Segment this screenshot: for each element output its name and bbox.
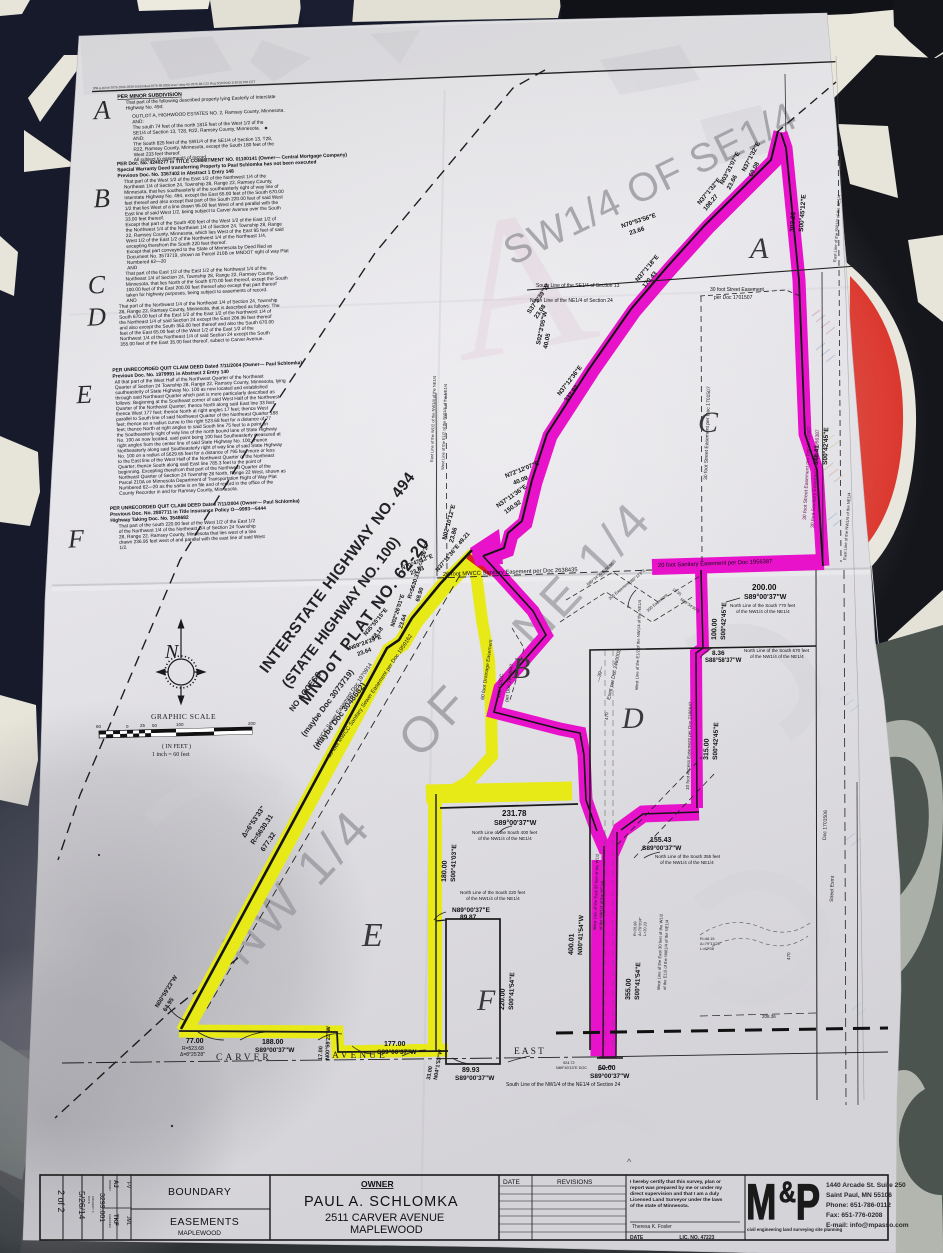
svg-text:North Line of the South 400 fe: North Line of the South 400 feet [472,830,538,835]
svg-text:60.00: 60.00 [598,1065,616,1072]
svg-text:E-mail: info@mpasso.com: E-mail: info@mpasso.com [826,1222,909,1229]
svg-text:231.78: 231.78 [502,809,527,818]
svg-text:Δ=79°13'24": Δ=79°13'24" [700,942,722,946]
svg-text:South Line of the SE1/4 of Sec: South Line of the SE1/4 of Section 13 [536,283,620,289]
svg-text:S88°58'37"W: S88°58'37"W [705,658,742,664]
svg-text:A: A [91,95,111,126]
svg-text:MAPLEWOOD: MAPLEWOOD [350,1224,423,1236]
svg-text:South Line of the NW1/4 of the: South Line of the NW1/4 of the NE1/4 of … [506,1082,620,1088]
svg-text:Δ=79°8'24": Δ=79°8'24" [638,916,643,936]
svg-text:( IN FEET ): ( IN FEET ) [162,743,191,750]
svg-text:E: E [361,917,383,954]
svg-text:2511 CARVER AVENUE: 2511 CARVER AVENUE [325,1212,444,1224]
svg-text:North Line of the South 670 fe: North Line of the South 670 feet [744,648,810,653]
svg-text:1 inch = 60 feet: 1 inch = 60 feet [152,751,190,758]
svg-text:1/2.: 1/2. [119,545,127,551]
svg-text:DATE: DATE [503,1179,521,1186]
svg-text:303.26: 303.26 [789,211,797,232]
svg-text:Licensed Land Surveyor under t: Licensed Land Surveyor under the laws [630,1197,723,1203]
svg-text:200.00: 200.00 [752,583,777,592]
svg-text:89.93: 89.93 [462,1067,480,1074]
svg-text:S00°42'45"E: S00°42'45"E [719,602,728,641]
svg-text:F: F [66,524,85,554]
svg-text:North Line of the South 770 fe: North Line of the South 770 feet [730,603,796,608]
svg-text:Theresa K. Fosler: Theresa K. Fosler [632,1224,672,1230]
svg-text:50: 50 [152,723,158,728]
svg-text:per Doc 1701507: per Doc 1701507 [714,295,753,301]
svg-text:EASEMENTS: EASEMENTS [170,1216,239,1228]
svg-text:North Line of the NE1/4 of Sec: North Line of the NE1/4 of Section 24 [530,298,613,304]
svg-text:30 foot Street Easement: 30 foot Street Easement [710,287,765,293]
svg-text:8.36: 8.36 [712,650,725,657]
svg-text:CHECKED: CHECKED [108,1214,112,1228]
svg-text:S00°41'54"E: S00°41'54"E [633,962,642,1001]
svg-text:DATE ____________ LIC. NO. 47: DATE ____________ LIC. NO. 47223 [630,1235,715,1241]
svg-text:of the NW1/4 of the NE1/4: of the NW1/4 of the NE1/4 [750,654,804,659]
svg-text:M: M [746,1174,776,1230]
svg-text:470: 470 [604,712,609,720]
svg-text:D: D [86,302,107,332]
svg-text:DATE: DATE [87,1196,91,1204]
svg-text:F: F [476,984,496,1017]
svg-text:1440 Arcade St. Suite 250: 1440 Arcade St. Suite 250 [826,1182,906,1189]
svg-text:100: 100 [176,722,184,727]
svg-text:5/26/14: 5/26/14 [77,1191,87,1220]
svg-text:R=46.15: R=46.15 [700,937,714,941]
svg-text:N: N [164,641,180,663]
svg-text:REVISIONS: REVISIONS [557,1179,593,1186]
svg-text:of the NW1/4 of the NE1/4: of the NW1/4 of the NE1/4 [660,860,714,865]
svg-text:208.36: 208.36 [762,1014,776,1019]
svg-text:Saint Paul, MN 55106: Saint Paul, MN 55106 [826,1192,892,1199]
svg-text:Street Esmt: Street Esmt [829,875,836,902]
svg-text:77.00: 77.00 [186,1038,204,1045]
svg-text:Δ=8°25'28": Δ=8°25'28" [180,1052,205,1058]
svg-text:S00°41'03"E: S00°41'03"E [449,844,458,883]
svg-text:S89°00'37"W: S89°00'37"W [744,593,787,601]
svg-text:BOUNDARY: BOUNDARY [168,1186,231,1198]
svg-text:3299.001: 3299.001 [98,1193,105,1222]
svg-text:315.00: 315.00 [703,738,711,760]
svg-text:C: C [87,270,106,300]
svg-text:B: B [512,652,530,685]
svg-text:355.00: 355.00 [625,978,633,1000]
svg-text:North Line of the South 220 fe: North Line of the South 220 feet [460,890,526,895]
svg-text:&: & [779,1175,796,1208]
svg-text:89.87: 89.87 [460,914,477,921]
svg-text:155.43: 155.43 [650,837,672,844]
svg-text:180.00: 180.00 [441,860,449,882]
svg-text:I hereby certify that this sur: I hereby certify that this survey, plan … [630,1179,721,1185]
svg-text:N00°41'54"W: N00°41'54"W [576,914,585,955]
svg-text:CARVER: CARVER [216,1053,272,1063]
svg-text:L=20.23: L=20.23 [643,922,647,936]
svg-text:N89°00'37"E: N89°00'37"E [452,906,491,914]
svg-text:B: B [93,183,111,214]
svg-text:R=28.98: R=28.98 [633,921,638,936]
svg-text:S89°00'37"W: S89°00'37"W [494,819,537,827]
svg-text:177.00: 177.00 [384,1041,406,1048]
svg-text:North Line of the South 355 fe: North Line of the South 355 feet [655,854,721,859]
svg-text:Fax: 651-776-0208: Fax: 651-776-0208 [826,1212,883,1219]
svg-text:FV: FV [125,1182,131,1189]
svg-text:AND:: AND: [132,119,144,125]
svg-text:EAST: EAST [514,1047,546,1057]
svg-text:924.72: 924.72 [563,1061,575,1065]
svg-text:L=67.08: L=67.08 [700,947,714,951]
svg-text:AVENUE: AVENUE [332,1051,388,1061]
svg-text:A: A [748,232,769,265]
svg-text:N89°40'13"E DOC: N89°40'13"E DOC [556,1066,587,1070]
svg-text:25: 25 [140,723,146,728]
svg-text:AND: AND [126,298,137,304]
svg-text:direct supervision and that I: direct supervision and that I am a duly [630,1191,719,1197]
svg-text:Phone: 651-786-0112: Phone: 651-786-0112 [826,1202,891,1209]
svg-text:DRAWN: DRAWN [108,1180,112,1190]
svg-text:S00°41'54"E: S00°41'54"E [507,972,516,1011]
svg-text:of the NW1/4 of the NE1/4: of the NW1/4 of the NE1/4 [478,836,532,841]
svg-text:E: E [75,380,93,410]
svg-text:400.01: 400.01 [568,933,576,955]
svg-text:OWNER: OWNER [361,1179,394,1189]
svg-text:MAPLEWOOD: MAPLEWOOD [178,1230,221,1237]
svg-text:17.00: 17.00 [318,1046,324,1060]
svg-text:D: D [621,702,644,735]
svg-text:220.00: 220.00 [499,988,507,1010]
svg-text:470: 470 [786,952,791,960]
svg-text:GRAPHIC SCALE: GRAPHIC SCALE [151,712,216,721]
svg-text:of the NW1/4 of the NE1/4: of the NW1/4 of the NE1/4 [466,896,520,901]
svg-text:60: 60 [96,724,102,729]
svg-text:S89°00'37"W: S89°00'37"W [590,1072,630,1080]
svg-text:188.00: 188.00 [262,1039,284,1046]
svg-text:100.00: 100.00 [711,618,719,640]
svg-text:AND: AND [127,265,138,271]
svg-text:S00°42'45"E: S00°42'45"E [821,427,830,466]
svg-text:200: 200 [248,721,256,726]
svg-text:of the NW1/4 of the NE1/4: of the NW1/4 of the NE1/4 [736,609,790,614]
svg-text:P: P [796,1174,820,1230]
svg-text:report was prepared by me or u: report was prepared by me or under my [630,1185,722,1191]
svg-text:S00°42'45"E: S00°42'45"E [711,722,720,761]
svg-text:S89°00'37"W: S89°00'37"W [455,1074,495,1082]
svg-text:2 of 2: 2 of 2 [56,1190,66,1213]
svg-text:Doc 1701506: Doc 1701506 [822,810,829,840]
svg-text:of the state of Minnesota.: of the state of Minnesota. [630,1203,690,1209]
svg-text:PAUL A. SCHLOMKA: PAUL A. SCHLOMKA [304,1194,459,1210]
svg-text:JML: JML [125,1216,131,1226]
svg-text:S89°00'37"W: S89°00'37"W [642,844,682,852]
